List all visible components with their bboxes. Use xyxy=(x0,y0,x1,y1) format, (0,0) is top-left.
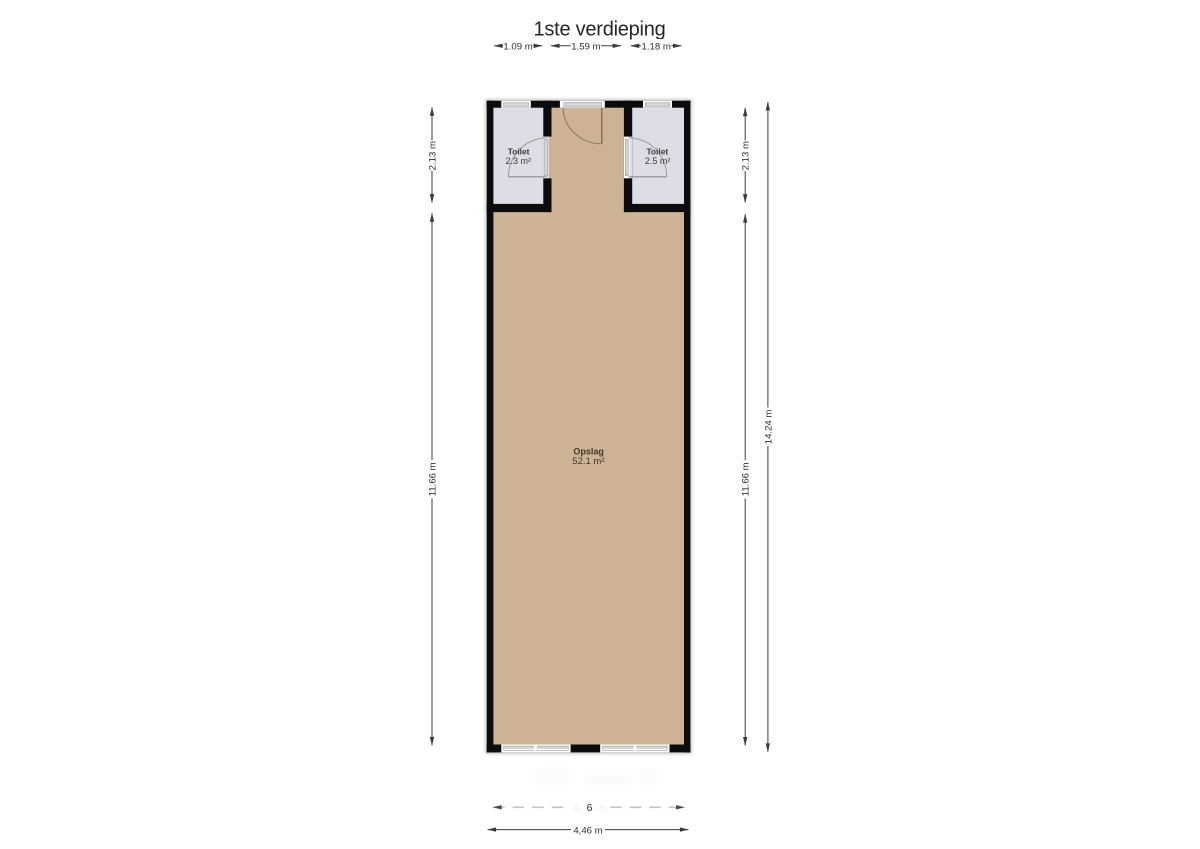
svg-text:52.1 m²: 52.1 m² xyxy=(572,456,604,467)
svg-text:4,: 4, xyxy=(572,803,580,814)
svg-text:11.66 m: 11.66 m xyxy=(741,462,752,496)
svg-text:11.66 m: 11.66 m xyxy=(428,462,439,496)
svg-text:1.18 m: 1.18 m xyxy=(642,42,671,53)
svg-text:6: 6 xyxy=(587,802,593,814)
svg-text:2.13 m: 2.13 m xyxy=(428,141,439,170)
svg-text:4,46 m: 4,46 m xyxy=(573,825,602,836)
svg-text:1.59 m: 1.59 m xyxy=(571,42,600,53)
svg-text:1ste verdieping: 1ste verdieping xyxy=(534,18,666,40)
svg-text:1.09 m: 1.09 m xyxy=(503,42,532,53)
svg-text:Toilet: Toilet xyxy=(508,146,530,156)
svg-text:2.3 m²: 2.3 m² xyxy=(506,156,532,166)
svg-text:Toilet: Toilet xyxy=(646,146,668,156)
svg-text:Opslag: Opslag xyxy=(573,446,604,456)
svg-text:m: m xyxy=(596,803,604,814)
svg-text:2.5 m²: 2.5 m² xyxy=(645,156,671,166)
svg-text:14.24 m: 14.24 m xyxy=(763,410,774,445)
svg-text:2.13 m: 2.13 m xyxy=(741,141,752,170)
